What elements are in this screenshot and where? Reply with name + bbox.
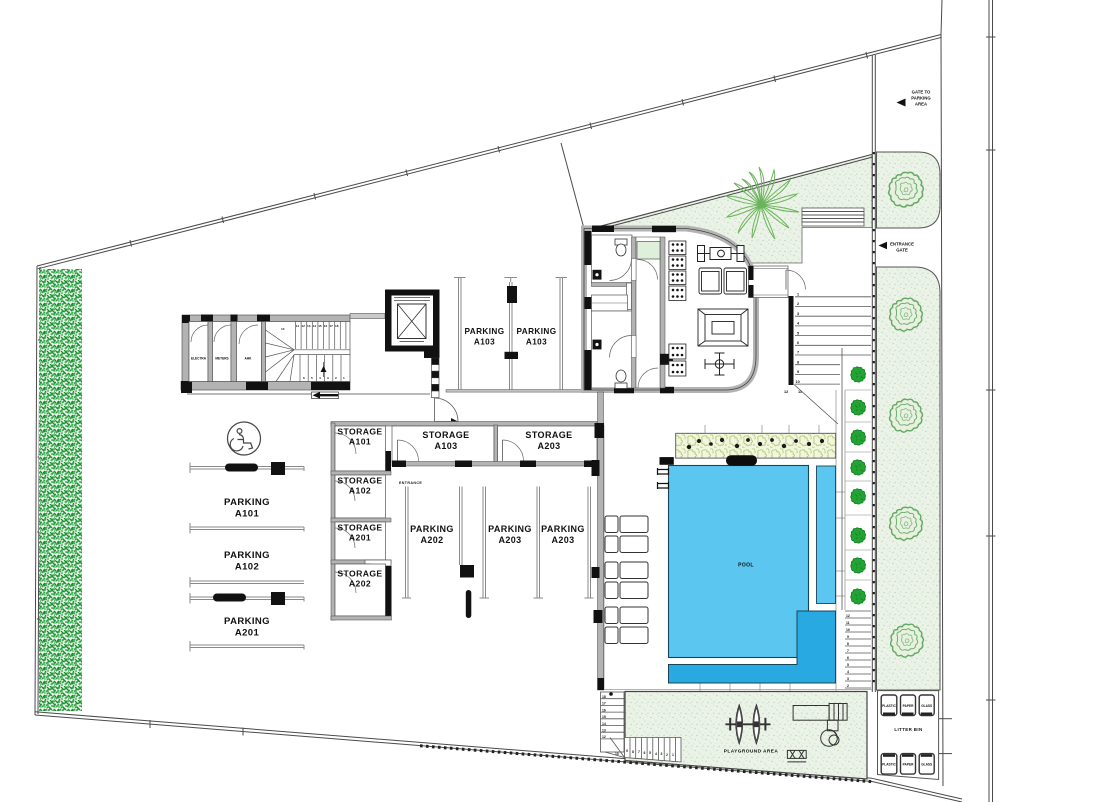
- svg-text:3: 3: [797, 312, 799, 316]
- svg-text:GATE: GATE: [896, 248, 908, 253]
- svg-text:A103: A103: [434, 441, 457, 451]
- svg-text:15: 15: [602, 715, 606, 719]
- svg-text:3: 3: [847, 677, 849, 681]
- svg-text:9: 9: [797, 370, 799, 374]
- svg-text:17: 17: [329, 324, 333, 328]
- svg-text:12: 12: [784, 390, 788, 394]
- svg-text:11: 11: [296, 324, 300, 328]
- svg-text:10: 10: [846, 628, 850, 632]
- svg-text:A203: A203: [537, 441, 560, 451]
- svg-text:14: 14: [602, 722, 606, 726]
- svg-text:1: 1: [343, 376, 345, 380]
- svg-text:A101: A101: [349, 437, 371, 447]
- svg-text:STORAGE: STORAGE: [337, 427, 382, 437]
- svg-text:12: 12: [602, 735, 606, 739]
- svg-text:PARKING: PARKING: [410, 524, 454, 534]
- svg-text:18: 18: [602, 695, 606, 699]
- svg-text:PAPER: PAPER: [903, 704, 914, 708]
- svg-text:7: 7: [847, 649, 849, 653]
- svg-text:11: 11: [798, 390, 802, 394]
- svg-text:METERS: METERS: [215, 357, 228, 361]
- svg-text:LITTER BIN: LITTER BIN: [894, 727, 922, 732]
- svg-text:STORAGE: STORAGE: [337, 569, 382, 579]
- svg-text:7: 7: [638, 750, 640, 754]
- svg-text:GLASS: GLASS: [921, 763, 932, 767]
- svg-text:A102: A102: [349, 486, 371, 496]
- svg-text:17: 17: [602, 702, 606, 706]
- svg-text:POOL: POOL: [738, 563, 754, 569]
- svg-text:AREA: AREA: [915, 102, 927, 107]
- svg-text:6: 6: [847, 656, 849, 660]
- svg-text:PARKING: PARKING: [911, 96, 931, 101]
- svg-text:15: 15: [318, 324, 322, 328]
- svg-text:16: 16: [324, 324, 328, 328]
- svg-text:2: 2: [335, 376, 337, 380]
- svg-text:STORAGE: STORAGE: [422, 430, 469, 440]
- svg-text:PARKING: PARKING: [541, 524, 585, 534]
- svg-text:PARKING: PARKING: [224, 497, 270, 508]
- svg-text:GLASS: GLASS: [921, 704, 932, 708]
- svg-text:1: 1: [672, 753, 674, 757]
- svg-text:AHK: AHK: [245, 357, 253, 361]
- svg-text:A101: A101: [235, 509, 260, 520]
- svg-text:A203: A203: [551, 535, 574, 545]
- svg-text:4: 4: [847, 670, 849, 674]
- svg-text:9: 9: [626, 749, 628, 753]
- svg-text:GATE TO: GATE TO: [912, 90, 931, 95]
- svg-text:2: 2: [847, 684, 849, 688]
- svg-text:4: 4: [319, 376, 321, 380]
- svg-text:A202: A202: [349, 579, 371, 589]
- svg-text:18: 18: [335, 324, 339, 328]
- svg-text:3: 3: [327, 376, 329, 380]
- svg-text:A201: A201: [235, 628, 260, 639]
- svg-text:10: 10: [615, 752, 619, 756]
- svg-text:3: 3: [661, 752, 663, 756]
- svg-text:9: 9: [847, 635, 849, 639]
- svg-text:8: 8: [847, 642, 849, 646]
- svg-text:13: 13: [307, 324, 311, 328]
- svg-text:4: 4: [655, 752, 657, 756]
- svg-text:16: 16: [602, 708, 606, 712]
- svg-text:STORAGE: STORAGE: [337, 476, 382, 486]
- svg-text:14: 14: [313, 324, 317, 328]
- svg-text:11: 11: [846, 621, 850, 625]
- svg-text:12: 12: [301, 324, 305, 328]
- svg-text:ENTRANCE: ENTRANCE: [399, 481, 422, 485]
- svg-text:6: 6: [644, 751, 646, 755]
- svg-text:A102: A102: [235, 562, 259, 573]
- svg-text:A201: A201: [349, 533, 371, 543]
- svg-text:PLAYGROUND AREA: PLAYGROUND AREA: [724, 749, 779, 755]
- svg-text:STORAGE: STORAGE: [337, 523, 382, 533]
- svg-text:2: 2: [666, 753, 668, 757]
- svg-text:5: 5: [311, 376, 313, 380]
- svg-text:6: 6: [797, 341, 799, 345]
- svg-text:PARKING: PARKING: [224, 550, 270, 561]
- svg-text:A103: A103: [526, 338, 547, 347]
- svg-text:A103: A103: [474, 338, 495, 347]
- svg-text:A202: A202: [420, 535, 443, 545]
- svg-text:5: 5: [847, 663, 849, 667]
- svg-text:1: 1: [797, 293, 799, 297]
- svg-text:ELECTRA: ELECTRA: [191, 357, 207, 361]
- svg-text:PARKING: PARKING: [224, 616, 270, 627]
- svg-text:8: 8: [797, 360, 799, 364]
- svg-text:PLASTIC: PLASTIC: [882, 704, 896, 708]
- svg-text:6: 6: [303, 376, 305, 380]
- svg-text:7: 7: [797, 351, 799, 355]
- svg-text:10: 10: [281, 327, 285, 331]
- svg-text:PARKING: PARKING: [517, 327, 557, 336]
- svg-text:5: 5: [797, 331, 799, 335]
- svg-text:PARKING: PARKING: [465, 327, 505, 336]
- svg-text:2: 2: [797, 302, 799, 306]
- svg-text:A203: A203: [498, 535, 521, 545]
- svg-text:5: 5: [649, 751, 651, 755]
- svg-text:12: 12: [846, 614, 850, 618]
- svg-text:PLASTIC: PLASTIC: [882, 763, 896, 767]
- svg-text:PAPER: PAPER: [903, 763, 914, 767]
- svg-text:STORAGE: STORAGE: [525, 430, 572, 440]
- svg-text:PARKING: PARKING: [488, 524, 532, 534]
- svg-text:ENTRANCE: ENTRANCE: [890, 242, 914, 247]
- svg-text:10: 10: [796, 380, 800, 384]
- svg-text:13: 13: [602, 729, 606, 733]
- svg-text:8: 8: [632, 750, 634, 754]
